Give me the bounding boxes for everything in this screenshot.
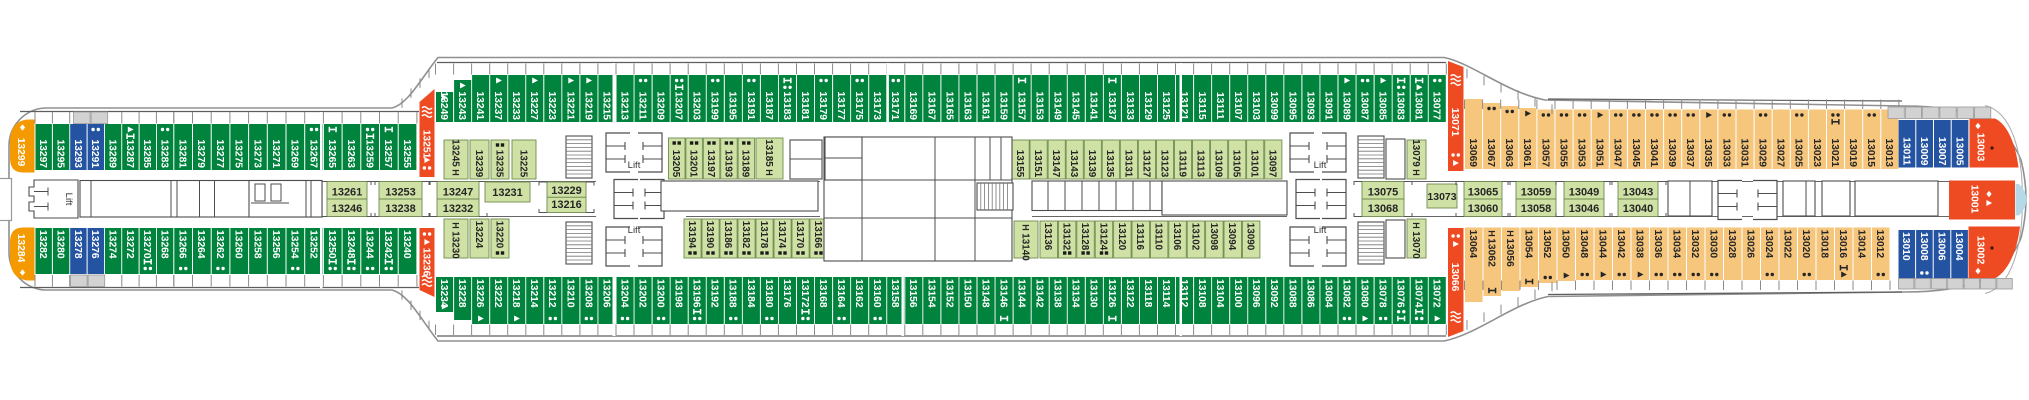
svg-text:13178: 13178: [758, 221, 769, 249]
svg-text:13211: 13211: [637, 92, 648, 120]
svg-text:13283: 13283: [159, 139, 170, 168]
svg-text:13129: 13129: [1142, 91, 1153, 120]
svg-text:13269: 13269: [289, 139, 300, 168]
svg-text:13044: 13044: [1597, 229, 1608, 258]
svg-text:13256: 13256: [270, 230, 281, 259]
svg-text:13152: 13152: [943, 279, 954, 308]
svg-text:13207: 13207: [673, 91, 684, 120]
svg-text:13079: 13079: [1410, 139, 1421, 167]
svg-text:13171: 13171: [889, 91, 900, 120]
svg-text:13230: 13230: [449, 231, 460, 259]
svg-text:13123: 13123: [1158, 150, 1169, 178]
svg-text:13150: 13150: [961, 279, 972, 308]
svg-text:13074: 13074: [1413, 279, 1424, 308]
svg-text:13281: 13281: [177, 139, 188, 168]
svg-text:13168: 13168: [817, 279, 828, 308]
svg-text:13170: 13170: [794, 221, 805, 249]
svg-text:13220: 13220: [493, 221, 504, 249]
svg-text:13169: 13169: [907, 91, 918, 120]
svg-text:13194: 13194: [686, 221, 697, 249]
svg-text:13179: 13179: [817, 91, 828, 120]
svg-text:13247: 13247: [443, 187, 474, 199]
svg-text:13156: 13156: [907, 279, 918, 308]
svg-text:13101: 13101: [1249, 150, 1260, 178]
svg-text:13262: 13262: [214, 230, 225, 259]
svg-text:13088: 13088: [1286, 279, 1297, 308]
svg-text:13061: 13061: [1521, 138, 1532, 167]
svg-text:13245: 13245: [449, 139, 460, 167]
svg-text:13050: 13050: [1560, 229, 1571, 258]
svg-text:13144: 13144: [1016, 279, 1027, 308]
svg-text:13189: 13189: [740, 150, 751, 178]
svg-text:13001: 13001: [1968, 185, 1979, 214]
svg-text:13056: 13056: [1504, 238, 1515, 267]
svg-text:13235: 13235: [493, 150, 504, 178]
svg-text:13227: 13227: [528, 91, 539, 120]
svg-text:13089: 13089: [1340, 91, 1351, 120]
svg-text:13132: 13132: [1061, 223, 1072, 251]
svg-text:13003: 13003: [1974, 133, 1985, 162]
svg-text:13258: 13258: [251, 230, 262, 259]
svg-text:13076: 13076: [1395, 279, 1406, 308]
svg-text:13201: 13201: [688, 150, 699, 178]
svg-text:13242: 13242: [382, 230, 393, 259]
svg-text:13254: 13254: [289, 230, 300, 259]
svg-text:H: H: [1505, 230, 1515, 237]
svg-text:13219: 13219: [582, 91, 593, 120]
svg-text:13067: 13067: [1485, 138, 1496, 167]
svg-text:13299: 13299: [15, 138, 26, 167]
svg-text:13083: 13083: [1395, 91, 1406, 120]
svg-text:13224: 13224: [473, 221, 484, 249]
svg-text:13111: 13111: [1214, 92, 1225, 120]
svg-text:13016: 13016: [1837, 229, 1848, 258]
svg-text:13157: 13157: [1016, 91, 1027, 120]
svg-text:13107: 13107: [1232, 91, 1243, 120]
svg-text:13147: 13147: [1050, 150, 1061, 178]
svg-text:H: H: [764, 169, 774, 176]
svg-text:13096: 13096: [1250, 279, 1261, 308]
svg-text:13069: 13069: [1467, 138, 1478, 167]
svg-text:13059: 13059: [1521, 187, 1552, 199]
svg-text:13176: 13176: [781, 279, 792, 308]
svg-text:H: H: [1411, 222, 1421, 229]
svg-text:13078: 13078: [1377, 279, 1388, 308]
svg-text:13012: 13012: [1874, 229, 1885, 258]
svg-text:13257: 13257: [382, 139, 393, 168]
svg-text:13159: 13159: [998, 91, 1009, 120]
svg-text:13163: 13163: [961, 91, 972, 120]
svg-text:13239: 13239: [473, 150, 484, 178]
svg-text:13243: 13243: [456, 91, 467, 120]
svg-text:13106: 13106: [1171, 223, 1182, 251]
svg-text:13188: 13188: [727, 279, 738, 308]
svg-text:13119: 13119: [1176, 150, 1187, 177]
svg-text:13008: 13008: [1918, 232, 1929, 261]
svg-text:13100: 13100: [1232, 279, 1243, 308]
svg-text:13036: 13036: [1652, 229, 1663, 258]
svg-text:13142: 13142: [1034, 279, 1045, 308]
svg-text:13081: 13081: [1413, 91, 1424, 120]
svg-text:13158: 13158: [889, 279, 900, 308]
svg-text:13082: 13082: [1340, 279, 1351, 308]
svg-text:13087: 13087: [1359, 91, 1370, 120]
svg-text:13034: 13034: [1671, 229, 1682, 258]
svg-text:13136: 13136: [1042, 223, 1053, 251]
svg-text:13064: 13064: [1467, 229, 1478, 258]
svg-text:13127: 13127: [1140, 150, 1151, 178]
svg-text:13018: 13018: [1819, 229, 1830, 258]
svg-text:13291: 13291: [89, 139, 100, 168]
svg-text:13085: 13085: [1377, 91, 1388, 120]
svg-text:13289: 13289: [107, 139, 118, 168]
svg-text:13215: 13215: [600, 91, 611, 120]
svg-text:13277: 13277: [214, 139, 225, 168]
svg-text:13238: 13238: [385, 203, 416, 215]
svg-text:13268: 13268: [159, 230, 170, 259]
svg-text:13165: 13165: [943, 91, 954, 120]
svg-text:13274: 13274: [107, 230, 118, 259]
svg-text:13276: 13276: [89, 230, 100, 259]
svg-text:13181: 13181: [799, 91, 810, 120]
svg-text:13232: 13232: [443, 203, 474, 215]
svg-text:13265: 13265: [326, 139, 337, 168]
svg-text:13206: 13206: [600, 279, 611, 308]
svg-text:13197: 13197: [705, 150, 716, 178]
svg-text:13200: 13200: [655, 279, 666, 308]
svg-text:13203: 13203: [691, 91, 702, 120]
svg-text:13260: 13260: [233, 230, 244, 259]
svg-text:13130: 13130: [1088, 279, 1099, 308]
svg-text:13266: 13266: [177, 230, 188, 259]
svg-text:13022: 13022: [1782, 229, 1793, 258]
svg-text:13131: 13131: [1122, 150, 1133, 178]
svg-text:13282: 13282: [37, 230, 48, 259]
svg-text:13182: 13182: [740, 221, 751, 249]
svg-text:13267: 13267: [307, 139, 318, 168]
svg-text:13241: 13241: [474, 91, 485, 120]
svg-text:13162: 13162: [853, 279, 864, 308]
svg-text:13140: 13140: [1019, 233, 1030, 261]
svg-text:13099: 13099: [1268, 91, 1279, 120]
svg-text:13004: 13004: [1953, 232, 1964, 261]
svg-text:13040: 13040: [1623, 203, 1654, 215]
svg-text:13071: 13071: [1449, 108, 1460, 137]
svg-text:13033: 13033: [1720, 138, 1731, 167]
svg-text:13148: 13148: [979, 279, 990, 308]
svg-text:13094: 13094: [1226, 223, 1237, 251]
svg-text:13272: 13272: [124, 230, 135, 259]
svg-text:13098: 13098: [1208, 223, 1219, 251]
svg-text:13021: 13021: [1829, 138, 1840, 167]
svg-text:13177: 13177: [835, 91, 846, 120]
svg-text:13049: 13049: [1569, 187, 1600, 199]
svg-text:13187: 13187: [763, 91, 774, 120]
svg-text:13134: 13134: [1070, 279, 1081, 308]
svg-text:13006: 13006: [1935, 232, 1946, 261]
svg-text:13090: 13090: [1245, 223, 1256, 251]
svg-text:13205: 13205: [670, 150, 681, 178]
svg-text:13052: 13052: [1541, 229, 1552, 258]
svg-text:H: H: [450, 222, 460, 229]
svg-text:13116: 13116: [1134, 223, 1145, 250]
svg-text:13190: 13190: [704, 221, 715, 249]
svg-text:13062: 13062: [1486, 238, 1497, 267]
svg-text:13218: 13218: [510, 279, 521, 308]
svg-text:13120: 13120: [1116, 223, 1127, 251]
svg-text:13080: 13080: [1359, 279, 1370, 308]
svg-text:13237: 13237: [492, 91, 503, 120]
svg-text:13086: 13086: [1304, 279, 1315, 308]
svg-text:13138: 13138: [1052, 279, 1063, 308]
svg-text:13141: 13141: [1088, 91, 1099, 120]
svg-text:13231: 13231: [492, 187, 523, 199]
svg-text:13047: 13047: [1612, 138, 1623, 167]
svg-text:13143: 13143: [1068, 150, 1079, 178]
svg-text:13287: 13287: [124, 139, 135, 168]
svg-text:13240: 13240: [401, 230, 412, 259]
svg-text:13192: 13192: [709, 279, 720, 308]
svg-text:13109: 13109: [1213, 150, 1224, 178]
svg-text:13048: 13048: [1578, 229, 1589, 258]
svg-text:13011: 13011: [1900, 137, 1911, 165]
svg-text:13024: 13024: [1763, 229, 1774, 258]
svg-text:13259: 13259: [364, 139, 375, 168]
svg-text:13055: 13055: [1557, 138, 1568, 167]
svg-text:13191: 13191: [745, 91, 756, 120]
svg-text:13060: 13060: [1468, 203, 1499, 215]
svg-text:13070: 13070: [1410, 231, 1421, 259]
svg-text:13284: 13284: [15, 234, 26, 263]
svg-text:13045: 13045: [1630, 138, 1641, 167]
svg-text:13223: 13223: [546, 91, 557, 120]
svg-text:13053: 13053: [1576, 138, 1587, 167]
svg-text:13166: 13166: [812, 221, 823, 249]
svg-text:13250: 13250: [326, 230, 337, 259]
svg-text:13013: 13013: [1883, 138, 1894, 167]
svg-text:13068: 13068: [1368, 203, 1399, 215]
svg-text:13278: 13278: [72, 230, 83, 259]
svg-text:13046: 13046: [1569, 203, 1600, 215]
svg-text:13263: 13263: [345, 139, 356, 168]
svg-text:13032: 13032: [1689, 229, 1700, 258]
svg-text:13271: 13271: [270, 139, 281, 168]
svg-text:13183: 13183: [781, 91, 792, 120]
svg-text:13209: 13209: [655, 91, 666, 120]
svg-text:13236: 13236: [420, 248, 431, 277]
svg-text:13273: 13273: [251, 139, 262, 168]
svg-text:13193: 13193: [722, 150, 733, 178]
svg-text:13023: 13023: [1811, 138, 1822, 167]
svg-text:Lift: Lift: [628, 160, 641, 171]
svg-text:Lift: Lift: [628, 225, 641, 236]
svg-text:13108: 13108: [1196, 279, 1207, 308]
svg-text:Lift: Lift: [1314, 225, 1327, 236]
svg-text:13208: 13208: [582, 279, 593, 308]
svg-text:13128: 13128: [1079, 223, 1090, 251]
svg-text:13122: 13122: [1124, 279, 1135, 308]
svg-text:13057: 13057: [1539, 138, 1550, 167]
svg-text:13043: 13043: [1623, 187, 1654, 199]
svg-text:13167: 13167: [925, 91, 936, 120]
svg-text:13279: 13279: [195, 139, 206, 168]
svg-text:13225: 13225: [517, 150, 528, 178]
svg-text:13124: 13124: [1097, 223, 1108, 251]
svg-text:13244: 13244: [364, 230, 375, 259]
svg-text:13297: 13297: [37, 139, 48, 168]
svg-text:Lift: Lift: [63, 193, 74, 206]
svg-text:13102: 13102: [1189, 223, 1200, 251]
svg-text:13065: 13065: [1468, 187, 1499, 199]
svg-text:13180: 13180: [763, 279, 774, 308]
svg-text:13210: 13210: [564, 279, 575, 308]
svg-text:13115: 13115: [1196, 92, 1207, 120]
svg-text:13280: 13280: [54, 230, 65, 259]
svg-text:13031: 13031: [1738, 138, 1749, 167]
svg-text:13005: 13005: [1954, 137, 1965, 166]
svg-text:13097: 13097: [1267, 150, 1278, 178]
svg-text:13118: 13118: [1142, 279, 1153, 307]
svg-text:13039: 13039: [1666, 138, 1677, 167]
svg-text:13172: 13172: [799, 279, 810, 308]
svg-text:13202: 13202: [637, 279, 648, 308]
svg-text:13139: 13139: [1086, 150, 1097, 178]
svg-text:13014: 13014: [1856, 229, 1867, 258]
svg-text:13234: 13234: [438, 279, 449, 308]
svg-text:13253: 13253: [385, 187, 416, 199]
svg-text:13133: 13133: [1124, 91, 1135, 120]
svg-text:13275: 13275: [233, 139, 244, 168]
svg-text:13009: 13009: [1918, 137, 1929, 166]
svg-text:13233: 13233: [510, 91, 521, 120]
svg-text:13185: 13185: [763, 139, 774, 167]
svg-text:13038: 13038: [1634, 229, 1645, 258]
svg-text:13160: 13160: [871, 279, 882, 308]
svg-text:13110: 13110: [1153, 223, 1164, 250]
svg-text:13066: 13066: [1449, 263, 1460, 292]
svg-text:13212: 13212: [546, 279, 557, 308]
svg-text:13164: 13164: [835, 279, 846, 308]
svg-text:13161: 13161: [979, 91, 990, 120]
svg-text:13092: 13092: [1268, 279, 1279, 308]
svg-text:13015: 13015: [1865, 138, 1876, 167]
svg-text:13264: 13264: [195, 230, 206, 259]
svg-text:13037: 13037: [1684, 138, 1695, 167]
svg-text:13135: 13135: [1104, 150, 1115, 178]
svg-text:13030: 13030: [1708, 229, 1719, 258]
svg-text:13154: 13154: [925, 279, 936, 308]
svg-text:13075: 13075: [1368, 187, 1399, 199]
svg-text:13019: 13019: [1847, 138, 1858, 167]
svg-text:13246: 13246: [332, 203, 363, 215]
svg-text:13095: 13095: [1286, 91, 1297, 120]
svg-text:13248: 13248: [345, 230, 356, 259]
svg-text:13146: 13146: [998, 279, 1009, 308]
svg-text:13126: 13126: [1106, 279, 1117, 308]
svg-text:Lift: Lift: [1314, 160, 1327, 171]
svg-text:13196: 13196: [691, 279, 702, 308]
svg-text:H: H: [450, 169, 460, 176]
svg-text:13041: 13041: [1648, 138, 1659, 167]
svg-text:13063: 13063: [1503, 138, 1514, 167]
svg-text:13175: 13175: [853, 91, 864, 120]
svg-text:13251: 13251: [420, 130, 431, 159]
svg-text:13125: 13125: [1160, 91, 1171, 120]
svg-text:H: H: [1411, 169, 1421, 176]
svg-text:13285: 13285: [141, 139, 152, 168]
svg-text:13105: 13105: [1231, 150, 1242, 178]
svg-text:13093: 13093: [1304, 91, 1315, 120]
svg-text:13252: 13252: [307, 230, 318, 259]
svg-text:13103: 13103: [1250, 91, 1261, 120]
svg-text:13226: 13226: [474, 279, 485, 308]
svg-text:13042: 13042: [1615, 229, 1626, 258]
svg-text:13204: 13204: [618, 279, 629, 308]
svg-text:13249: 13249: [438, 91, 449, 120]
svg-text:13054: 13054: [1523, 229, 1534, 258]
svg-text:13072: 13072: [1431, 279, 1442, 308]
svg-text:13051: 13051: [1594, 138, 1605, 167]
svg-text:13073: 13073: [1427, 191, 1456, 203]
svg-text:13149: 13149: [1052, 91, 1063, 120]
svg-text:13195: 13195: [727, 91, 738, 120]
svg-text:13145: 13145: [1070, 91, 1081, 120]
svg-text:13114: 13114: [1160, 279, 1171, 307]
svg-text:13216: 13216: [551, 199, 582, 211]
svg-text:13173: 13173: [871, 91, 882, 120]
svg-text:13104: 13104: [1214, 279, 1225, 308]
svg-text:13035: 13035: [1702, 138, 1713, 167]
svg-text:13091: 13091: [1322, 91, 1333, 120]
svg-text:13029: 13029: [1757, 138, 1768, 167]
svg-text:13229: 13229: [551, 185, 582, 197]
svg-text:13137: 13137: [1106, 91, 1117, 120]
svg-text:13214: 13214: [528, 279, 539, 308]
svg-text:13084: 13084: [1322, 279, 1333, 308]
svg-text:13213: 13213: [618, 91, 629, 120]
svg-text:13255: 13255: [401, 139, 412, 168]
svg-text:13153: 13153: [1034, 91, 1045, 120]
svg-text:13007: 13007: [1936, 137, 1947, 166]
svg-text:13221: 13221: [564, 91, 575, 120]
svg-text:13199: 13199: [709, 91, 720, 120]
svg-text:H: H: [1020, 224, 1030, 231]
svg-text:13270: 13270: [141, 230, 152, 259]
svg-text:13184: 13184: [745, 279, 756, 308]
svg-text:13186: 13186: [722, 221, 733, 249]
svg-text:13198: 13198: [673, 279, 684, 308]
svg-text:13151: 13151: [1032, 150, 1043, 178]
svg-text:13113: 13113: [1195, 150, 1206, 177]
svg-text:13155: 13155: [1014, 150, 1025, 178]
svg-text:13027: 13027: [1775, 138, 1786, 167]
svg-text:13261: 13261: [332, 187, 363, 199]
svg-text:H: H: [1487, 230, 1497, 237]
svg-text:13077: 13077: [1431, 91, 1442, 120]
svg-text:13222: 13222: [492, 279, 503, 308]
svg-text:13058: 13058: [1521, 203, 1552, 215]
svg-text:13228: 13228: [456, 279, 467, 308]
svg-text:13026: 13026: [1745, 229, 1756, 258]
svg-text:13025: 13025: [1793, 138, 1804, 167]
svg-text:13020: 13020: [1800, 229, 1811, 258]
svg-text:13002: 13002: [1974, 236, 1985, 265]
svg-text:13174: 13174: [776, 221, 787, 249]
svg-text:13010: 13010: [1900, 232, 1911, 261]
svg-text:13293: 13293: [72, 139, 83, 168]
svg-text:13028: 13028: [1726, 229, 1737, 258]
svg-text:13295: 13295: [54, 139, 65, 168]
